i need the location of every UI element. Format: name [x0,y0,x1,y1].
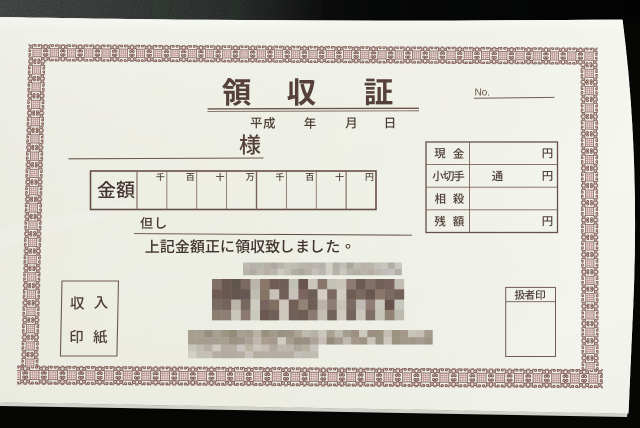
svg-text:No.: No. [475,87,490,98]
